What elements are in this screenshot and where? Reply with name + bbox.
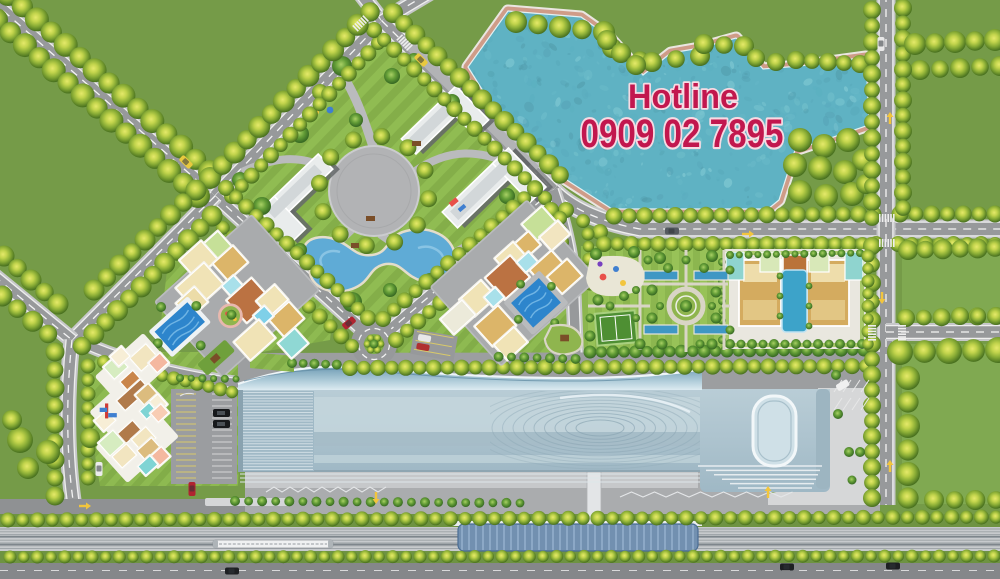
- svg-text:0909 02 7895: 0909 02 7895: [581, 112, 784, 156]
- svg-text:Hotline: Hotline: [628, 78, 738, 116]
